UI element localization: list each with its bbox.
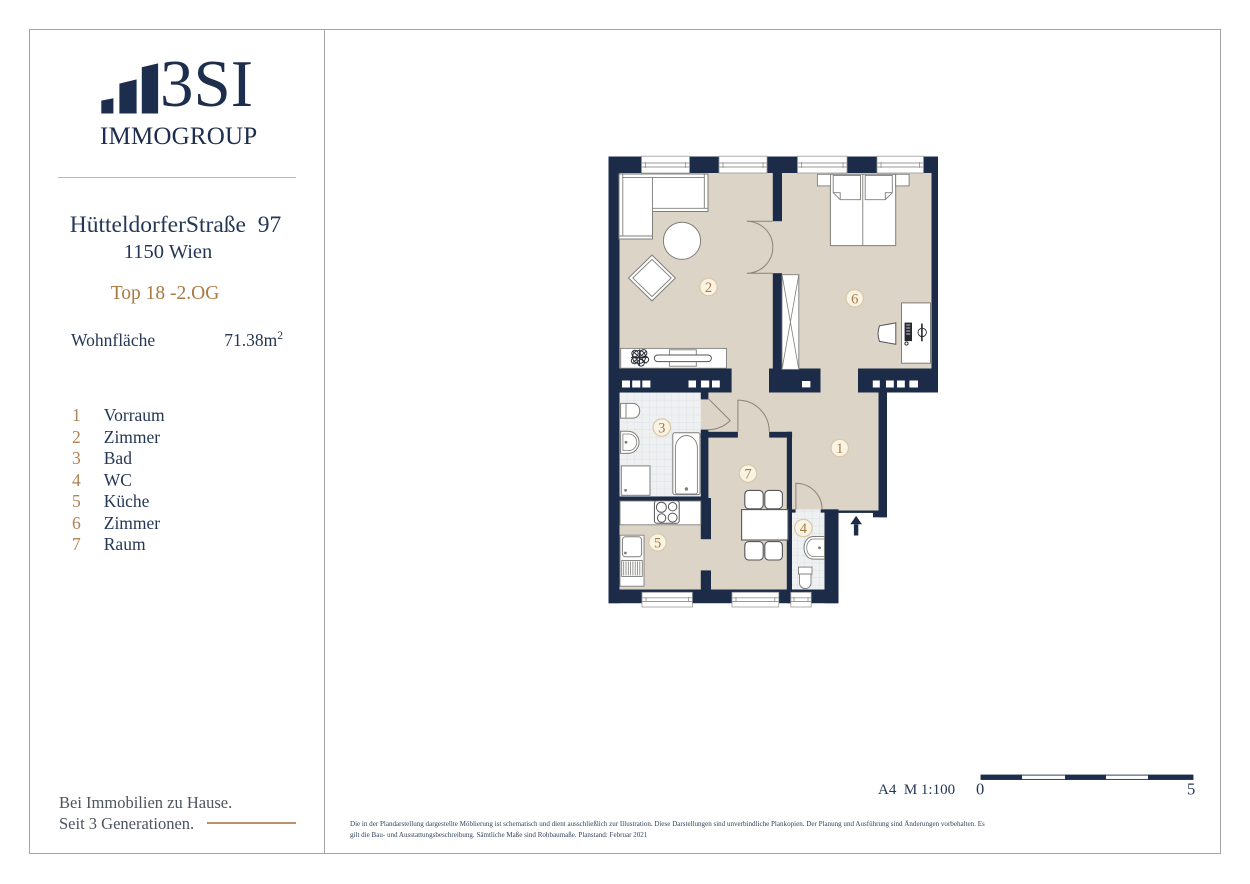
- svg-text:4: 4: [800, 521, 808, 537]
- svg-text:6: 6: [851, 291, 858, 307]
- svg-text:5: 5: [1187, 779, 1195, 798]
- svg-text:3: 3: [658, 421, 665, 437]
- svg-text:5: 5: [654, 535, 661, 551]
- svg-text:0: 0: [976, 779, 984, 798]
- svg-text:1: 1: [836, 441, 843, 457]
- svg-text:2: 2: [705, 280, 712, 296]
- svg-text:7: 7: [744, 467, 751, 483]
